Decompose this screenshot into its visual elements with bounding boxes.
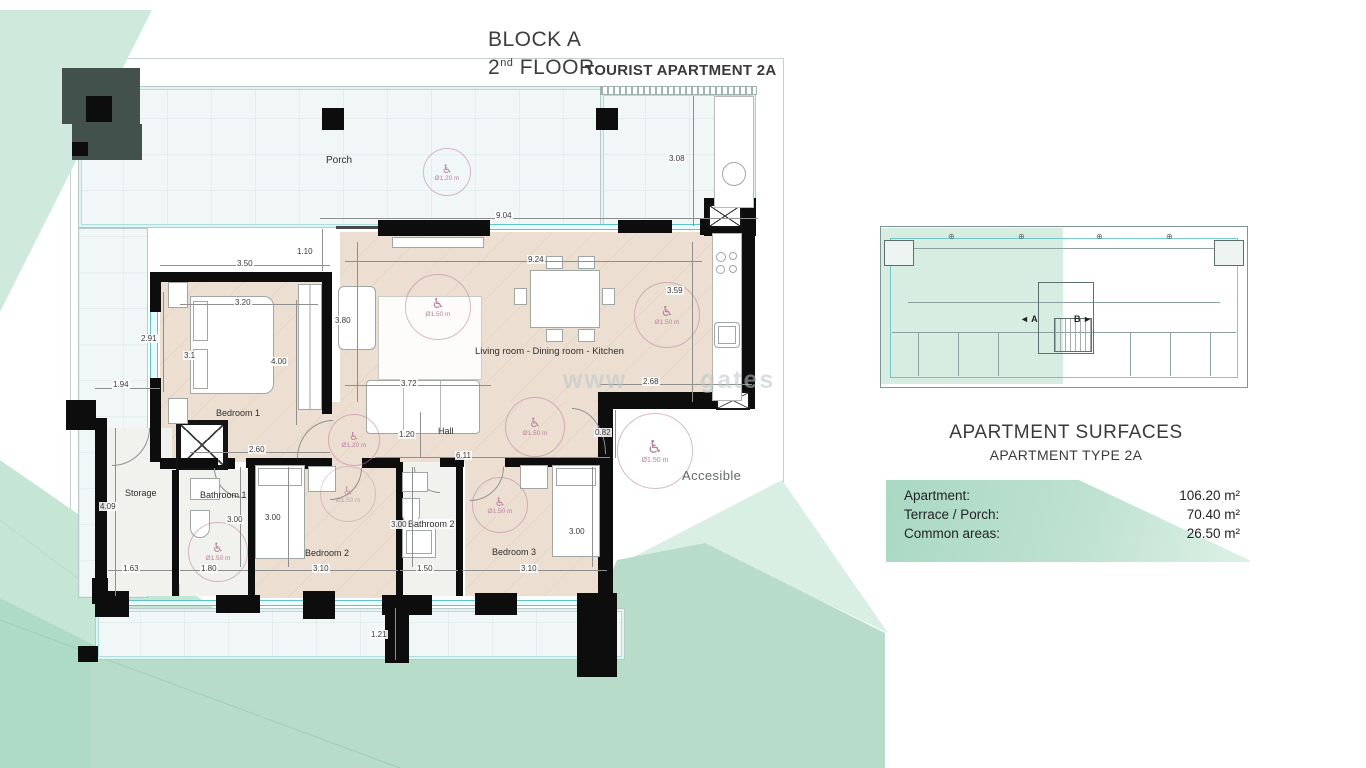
chair [546,256,563,269]
dim-line [412,467,413,567]
surface-value: 106.20 m² [1179,486,1240,505]
column [86,96,112,122]
dim-line [615,410,616,458]
wall-segment [248,462,255,596]
column-mark: ⊕ [1166,232,1173,241]
dim-line [288,467,289,567]
dim-label: 3.20 [234,298,252,307]
wheelchair-icon: ♿ [529,417,541,430]
room-label-bathroom2: Bathroom 2 [408,519,455,529]
wall-segment [172,470,179,596]
diameter-label: Ø1.50 m [523,430,548,437]
wheelchair-icon: ♿ [442,163,453,175]
column [92,578,108,604]
dim-label: 1.20 [398,430,416,439]
surface-label: Apartment: [904,486,970,505]
window [517,600,577,606]
column [596,108,618,130]
accessibility-circle: ♿ Ø1.50 m [320,466,376,522]
stove-burner [716,252,726,262]
dim-label: 9.24 [527,255,545,264]
watermark-left: www [563,366,627,395]
wall-segment [150,274,161,312]
dim-line [357,242,358,402]
stove-burner [729,252,737,260]
dim-label: 3.10 [312,564,330,573]
room-label-bedroom1: Bedroom 1 [216,408,260,418]
dim-label: 3.00 [264,513,282,522]
wheelchair-icon: ♿ [343,485,354,497]
pillow [258,468,302,486]
surface-row: Terrace / Porch: 70.40 m² [886,505,1250,524]
surface-row: Common areas: 26.50 m² [886,524,1250,543]
keyplan-unit-b-label: B ► [1074,314,1092,324]
column [78,646,98,662]
diameter-label: Ø1.50 m [655,319,680,326]
title-block: BLOCK A 2nd FLOOR [488,28,595,80]
window [335,600,382,606]
dim-line [345,385,491,386]
diameter-label: Ø1.20 m [435,175,460,182]
accessibility-circle: ♿ Ø1.50 m [405,274,471,340]
dim-label: 3.72 [400,379,418,388]
block-title: BLOCK A [488,28,595,52]
keyplan-wall [918,332,919,376]
wheelchair-icon: ♿ [661,305,674,319]
wall-segment [456,462,463,596]
apartment-type-title: TOURIST APARTMENT 2A [585,62,777,79]
window [672,224,700,230]
keyplan-tower [1214,240,1244,266]
room-label-bedroom3: Bedroom 3 [492,547,536,557]
dim-label: 1.10 [296,247,314,256]
surfaces-subheading: APARTMENT TYPE 2A [880,447,1252,463]
keyplan-wall [1130,332,1131,376]
stove-burner [716,265,725,274]
column [382,595,432,615]
sofa [366,380,480,434]
nightstand [520,465,548,489]
accessibility-circle: ♿ Ø1.50 m [188,522,248,582]
column [475,593,517,615]
dim-label: 3.59 [666,286,684,295]
floor-title: 2nd FLOOR [488,56,595,80]
surfaces-rows: Apartment: 106.20 m² Terrace / Porch: 70… [886,486,1250,543]
dim-label: 1.63 [122,564,140,573]
room-label-hall: Hall [438,426,454,436]
dim-label: 1.80 [200,564,218,573]
dim-line [345,261,702,262]
wall-segment [577,593,617,677]
wall-segment [378,220,490,236]
diameter-label: Ø1.50 m [206,555,231,562]
tv-unit [392,237,484,248]
dim-label: 2.91 [140,334,158,343]
dim-label: 1.21 [370,630,388,639]
keyplan-wall [1170,332,1171,376]
wall-segment [150,378,161,462]
accessibility-circle: ♿ Ø1.50 m [505,397,565,457]
wheelchair-icon: ♿ [432,297,445,311]
dim-line [108,570,172,571]
column [385,613,409,663]
dim-label: 4.09 [99,502,117,511]
surface-label: Common areas: [904,524,1000,543]
column-mark: ⊕ [948,232,955,241]
surfaces-heading: APARTMENT SURFACES [880,422,1252,444]
accessibility-circle: ♿ Ø1.20 m [423,148,471,196]
diameter-label: Ø1.50 m [426,311,451,318]
dim-label: 3.00 [390,520,408,529]
dim-line [420,412,421,458]
column [72,142,88,156]
surface-value: 70.40 m² [1187,505,1240,524]
pillow [556,468,596,486]
wheelchair-icon: ♿ [495,496,506,508]
wall-segment [178,458,218,468]
diameter-label: Ø1.20 m [342,442,367,449]
dim-label: 3.00 [226,515,244,524]
keyplan-wall [1210,332,1211,376]
keyplan-wall [998,332,999,376]
room-label-porch: Porch [326,155,352,166]
dim-line [395,608,396,660]
diameter-label: Ø1.50 m [488,508,513,515]
bottom-terrace-floor [95,608,625,660]
dim-line [375,457,610,458]
dim-label: 2.60 [248,445,266,454]
room-label-storage: Storage [125,488,157,498]
kitchen-sink [714,322,740,348]
accessibility-circle: ♿ Ø1.50 m [472,477,528,533]
wheelchair-icon: ♿ [212,542,224,555]
wall-segment [618,220,672,233]
column [322,108,344,130]
dim-line [692,242,693,402]
porch-counter [714,96,754,208]
dim-label: 9.04 [495,211,513,220]
pillow [193,301,208,341]
stove-burner [729,265,737,273]
floor-number: 2 [488,56,500,79]
dim-label: 3.00 [568,527,586,536]
dim-label: 1.94 [112,380,130,389]
hatched-edge [600,86,757,95]
dim-label: 0.82 [594,428,612,437]
floor-ordinal: nd [500,57,513,69]
window [490,224,618,230]
column [66,400,96,430]
shower-tray [402,526,436,558]
dim-label: 2.68 [642,377,660,386]
diameter-label: Ø1.50 m [336,497,361,504]
window [129,600,216,606]
washbasin [402,472,428,492]
room-label-accessible: Accesible [682,468,741,483]
porch-sink [722,162,746,186]
dim-label: 4.00 [270,357,288,366]
surfaces-panel: APARTMENT SURFACES APARTMENT TYPE 2A [880,422,1252,463]
surface-row: Apartment: 106.20 m² [886,486,1250,505]
dim-line [693,96,694,226]
wall-segment [150,272,332,282]
keyplan-unit-a-label: ◄ A [1020,314,1038,324]
watermark-right: gates [700,366,775,395]
surface-label: Terrace / Porch: [904,505,999,524]
dim-line [296,300,297,425]
key-plan: ⊕ ⊕ ⊕ ⊕ ◄ A B ► [878,222,1250,392]
wheelchair-icon: ♿ [647,439,663,457]
dim-label: 3.08 [668,154,686,163]
dining-table [530,270,600,328]
window [432,600,475,606]
keyplan-wall [892,248,1236,249]
diameter-label: Ø1.50 m [642,457,669,464]
chair [578,256,595,269]
dim-label: 1.50 [416,564,434,573]
column-mark: ⊕ [1018,232,1025,241]
column [216,595,260,613]
room-label-living: Living room - Dining room - Kitchen [475,346,624,357]
nightstand [168,398,188,424]
wall-segment [322,272,332,414]
dim-label: 3.1 [183,351,196,360]
keyplan-wall [958,332,959,376]
surface-value: 26.50 m² [1187,524,1240,543]
chair [602,288,615,305]
dim-line [592,467,593,567]
chair [546,329,563,342]
dim-line [322,229,323,271]
room-label-bedroom2: Bedroom 2 [305,548,349,558]
dim-line [163,292,164,392]
dim-label: 3.80 [334,316,352,325]
window [150,312,158,378]
column-mark: ⊕ [1096,232,1103,241]
wardrobe [298,284,322,410]
floor-word: FLOOR [513,56,594,79]
dim-label: 3.10 [520,564,538,573]
chair [578,329,595,342]
dim-label: 3.50 [236,259,254,268]
column [303,591,335,619]
accessibility-circle: ♿ Ø1.20 m [328,414,380,466]
dim-label: 6.11 [455,451,472,460]
wheelchair-icon: ♿ [349,431,359,442]
chair [514,288,527,305]
keyplan-tower [884,240,914,266]
window [260,600,303,606]
